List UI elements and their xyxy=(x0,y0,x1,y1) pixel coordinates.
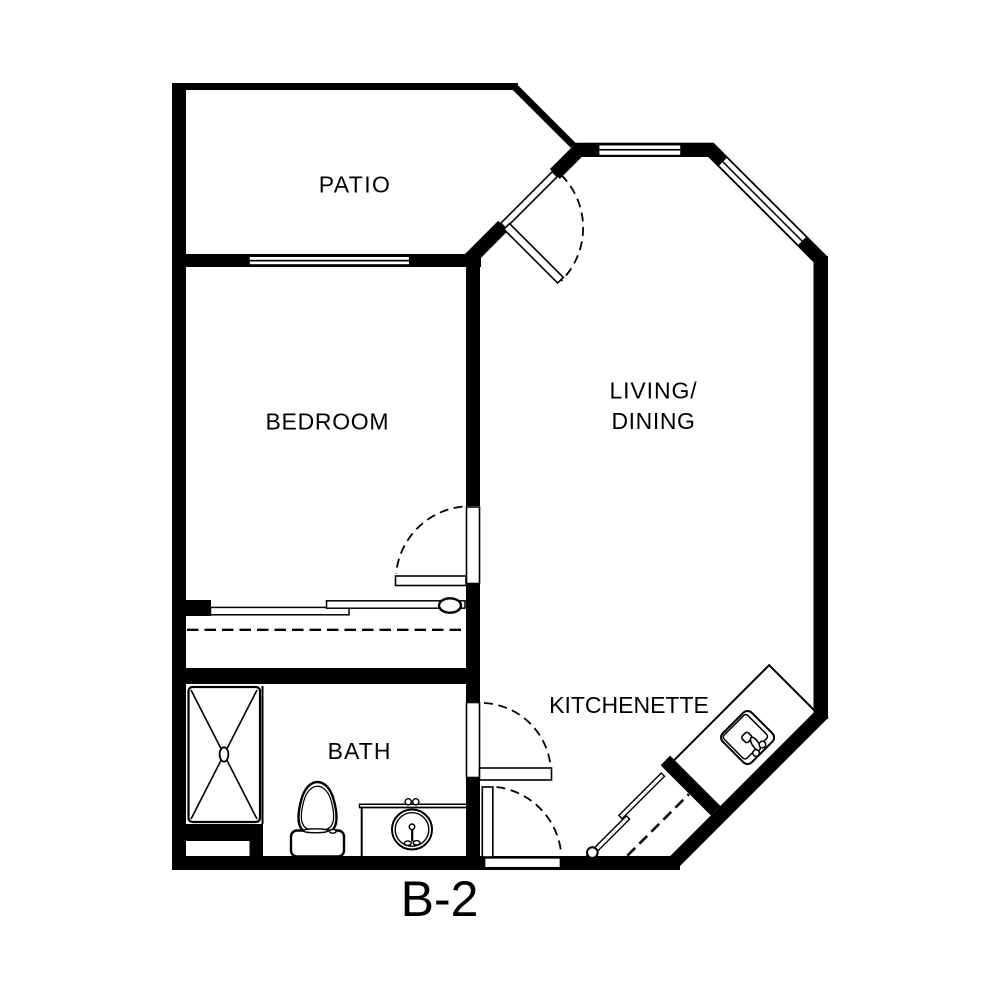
svg-text:LIVING/: LIVING/ xyxy=(609,378,697,404)
svg-text:BEDROOM: BEDROOM xyxy=(266,409,390,435)
svg-text:DINING: DINING xyxy=(611,408,695,434)
svg-text:PATIO: PATIO xyxy=(319,171,392,197)
svg-text:KITCHENETTE: KITCHENETTE xyxy=(549,692,709,718)
svg-text:BATH: BATH xyxy=(328,738,392,764)
svg-text:B-2: B-2 xyxy=(401,871,479,927)
